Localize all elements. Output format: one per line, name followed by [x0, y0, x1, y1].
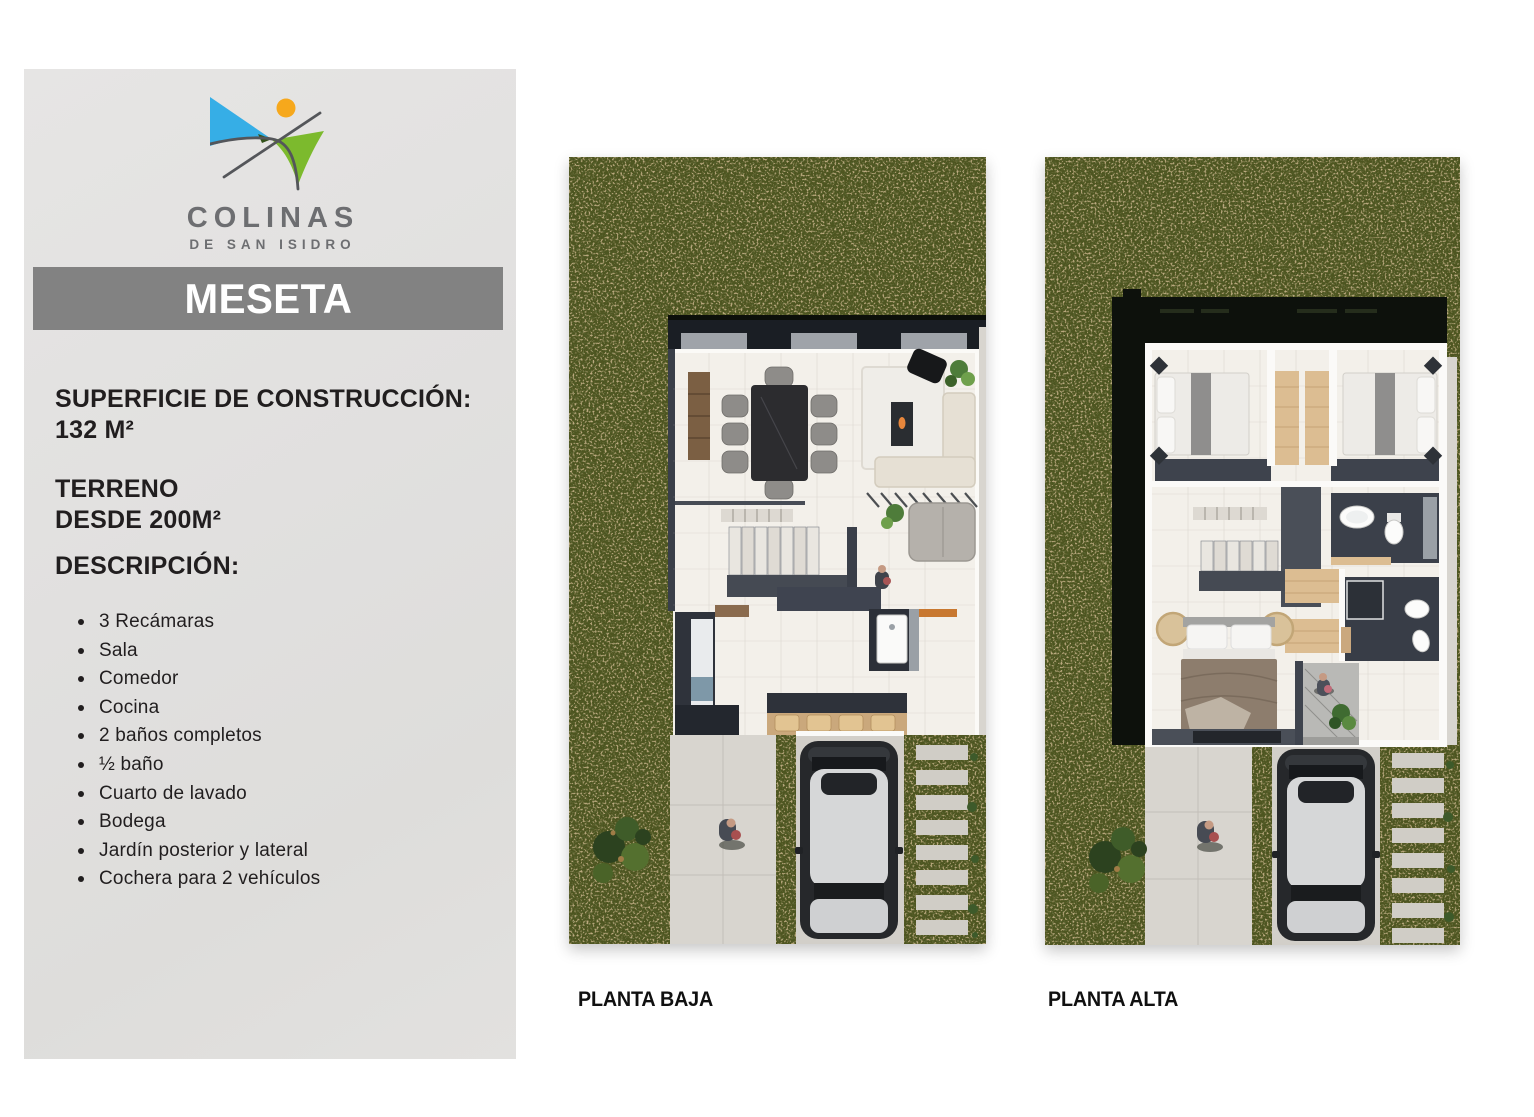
construction-spec: SUPERFICIE DE CONSTRUCCIÓN: 132 M² [55, 384, 492, 446]
info-sidebar: COLINAS DE SAN ISIDRO MESETA SUPERFICIE … [24, 69, 516, 1059]
brand-subname: DE SAN ISIDRO [24, 237, 516, 252]
planta-baja-floorplan-image [569, 157, 986, 944]
land-label: TERRENO [55, 474, 492, 505]
brand-logo: COLINAS DE SAN ISIDRO [24, 97, 516, 252]
construction-value: 132 M² [55, 415, 492, 446]
feature-item: Cuarto de lavado [57, 784, 320, 804]
brand-name: COLINAS [24, 202, 516, 235]
planta-baja-label: PLANTA BAJA [578, 988, 713, 1012]
model-title: MESETA [184, 275, 352, 323]
land-value: DESDE 200M² [55, 505, 492, 536]
features-list: 3 Recámaras Sala Comedor Cocina 2 baños … [57, 612, 320, 898]
description-heading: DESCRIPCIÓN: [55, 551, 492, 582]
description-label: DESCRIPCIÓN: [55, 551, 492, 582]
feature-item: 2 baños completos [57, 726, 320, 746]
feature-item: 3 Recámaras [57, 612, 320, 632]
construction-label: SUPERFICIE DE CONSTRUCCIÓN: [55, 384, 492, 415]
feature-item: Cochera para 2 vehículos [57, 869, 320, 889]
feature-item: Sala [57, 641, 320, 661]
model-banner: MESETA [33, 267, 503, 330]
planta-alta-label: PLANTA ALTA [1048, 988, 1178, 1012]
feature-item: Comedor [57, 669, 320, 689]
colinas-logo-icon [210, 97, 330, 193]
feature-item: Cocina [57, 698, 320, 718]
feature-item: ½ baño [57, 755, 320, 775]
planta-alta-floorplan-image [1045, 157, 1460, 945]
feature-item: Bodega [57, 812, 320, 832]
land-spec: TERRENO DESDE 200M² [55, 474, 492, 536]
feature-item: Jardín posterior y lateral [57, 841, 320, 861]
